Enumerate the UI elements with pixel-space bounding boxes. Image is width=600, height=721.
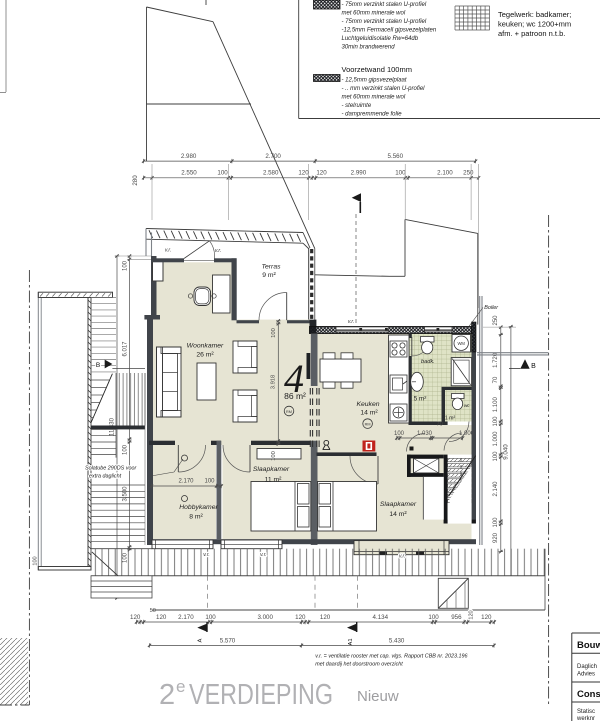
svg-text:badk.: badk. <box>421 359 435 365</box>
svg-text:-12,5mm Fermacell gipsvezelpla: -12,5mm Fermacell gipsvezelplaten <box>342 28 437 34</box>
svg-text:2.990: 2.990 <box>351 170 367 177</box>
svg-text:5.560: 5.560 <box>388 153 404 160</box>
svg-text:250: 250 <box>463 170 474 177</box>
svg-text:Keuken: Keuken <box>356 401 379 408</box>
svg-text:2.100: 2.100 <box>437 170 453 177</box>
svg-text:afm. + patroon n.t.b.: afm. + patroon n.t.b. <box>498 29 565 38</box>
svg-text:2.550: 2.550 <box>181 170 197 177</box>
svg-text:120: 120 <box>130 614 141 621</box>
svg-text:e: e <box>176 677 185 696</box>
svg-text:1.000: 1.000 <box>493 431 499 447</box>
svg-text:100: 100 <box>493 451 499 462</box>
svg-text:30min brandwerend: 30min brandwerend <box>342 45 396 51</box>
svg-text:3.000: 3.000 <box>257 614 273 621</box>
svg-text:RM: RM <box>286 410 292 414</box>
svg-text:120: 120 <box>320 614 331 621</box>
svg-text:Slaapkamer: Slaapkamer <box>380 501 417 508</box>
svg-text:100: 100 <box>217 170 228 177</box>
svg-text:v.r.: v.r. <box>165 248 172 254</box>
svg-text:100: 100 <box>395 170 406 177</box>
svg-text:8 m²: 8 m² <box>189 514 203 521</box>
svg-text:250: 250 <box>493 315 499 326</box>
svg-text:1.030: 1.030 <box>417 431 433 437</box>
svg-text:2.700: 2.700 <box>265 153 281 160</box>
svg-text:2.580: 2.580 <box>263 170 279 177</box>
svg-text:120: 120 <box>298 170 309 177</box>
svg-text:Terras: Terras <box>261 264 281 271</box>
svg-text:Voorzetwand 100mm: Voorzetwand 100mm <box>342 65 412 74</box>
svg-text:2.170: 2.170 <box>178 478 194 484</box>
svg-text:met daardij het doorstroom ove: met daardij het doorstroom overzicht <box>315 662 403 668</box>
svg-text:100: 100 <box>122 444 128 455</box>
svg-text:14 m²: 14 m² <box>389 511 407 518</box>
svg-text:120: 120 <box>156 614 167 621</box>
svg-text:Daglich: Daglich <box>577 664 597 670</box>
svg-text:100: 100 <box>493 517 499 528</box>
svg-text:Tegelwerk: badkamer;: Tegelwerk: badkamer; <box>498 10 571 19</box>
svg-text:2.980: 2.980 <box>181 153 197 160</box>
svg-text:70: 70 <box>493 376 499 383</box>
svg-text:1.100: 1.100 <box>493 397 499 413</box>
svg-text:werknr: werknr <box>576 716 595 721</box>
svg-text:met 60mm minerale wol: met 60mm minerale wol <box>342 11 406 17</box>
svg-text:26 m²: 26 m² <box>196 352 214 359</box>
svg-text:120: 120 <box>469 610 475 619</box>
svg-text:A: A <box>198 638 204 642</box>
svg-text:100: 100 <box>394 431 405 437</box>
svg-text:v.r.: v.r. <box>215 248 222 254</box>
svg-text:v.r.: v.r. <box>203 552 210 558</box>
svg-text:9.040: 9.040 <box>502 444 509 460</box>
svg-text:Statisc: Statisc <box>577 709 595 715</box>
svg-text:B: B <box>531 363 536 370</box>
svg-text:6.017: 6.017 <box>122 341 128 357</box>
svg-text:v.r.: v.r. <box>348 319 355 325</box>
svg-text:9 m²: 9 m² <box>262 272 276 279</box>
svg-text:3.500: 3.500 <box>122 486 128 502</box>
svg-text:Woonkamer: Woonkamer <box>187 343 224 350</box>
svg-text:1.000: 1.000 <box>459 431 475 437</box>
svg-text:Slaapkamer: Slaapkamer <box>253 466 290 473</box>
svg-text:2.170: 2.170 <box>178 614 194 621</box>
svg-text:Bouw: Bouw <box>577 640 600 651</box>
svg-text:5.570: 5.570 <box>220 637 236 644</box>
svg-text:2: 2 <box>159 679 175 711</box>
svg-text:met 60mm minerale wol: met 60mm minerale wol <box>342 95 406 101</box>
svg-text:5.430: 5.430 <box>389 637 405 644</box>
svg-text:keuken; wc 1200+mm: keuken; wc 1200+mm <box>498 20 571 29</box>
svg-text:Hobbykamer: Hobbykamer <box>179 504 218 511</box>
svg-text:5 m²: 5 m² <box>414 396 427 403</box>
svg-text:100: 100 <box>33 556 39 565</box>
svg-text:v.r.: v.r. <box>399 554 406 560</box>
svg-text:B: B <box>96 362 100 369</box>
svg-text:1 m²: 1 m² <box>445 416 456 422</box>
svg-text:v.r.: v.r. <box>260 552 267 558</box>
svg-text:- 75mm verzinkt stalen U-profi: - 75mm verzinkt stalen U-profiel <box>342 2 427 8</box>
svg-text:956: 956 <box>451 614 462 621</box>
svg-text:920: 920 <box>493 532 499 543</box>
svg-text:Luchtgeluidisolatie Rw=64db: Luchtgeluidisolatie Rw=64db <box>342 36 419 42</box>
svg-text:4.134: 4.134 <box>373 614 389 621</box>
svg-text:A1: A1 <box>348 638 354 645</box>
svg-text:50: 50 <box>150 608 156 614</box>
svg-text:Nieuw: Nieuw <box>357 688 399 705</box>
svg-text:extra daglicht: extra daglicht <box>89 474 122 480</box>
svg-text:WM: WM <box>457 341 465 346</box>
svg-text:100: 100 <box>205 614 216 621</box>
svg-text:100: 100 <box>428 614 439 621</box>
svg-text:100: 100 <box>271 328 277 338</box>
svg-text:- stelruimte: - stelruimte <box>342 103 372 109</box>
svg-text:Cons: Cons <box>577 689 600 700</box>
svg-text:100: 100 <box>204 478 215 484</box>
svg-text:VERDIEPING: VERDIEPING <box>189 679 333 711</box>
svg-text:- dampremmende folie: - dampremmende folie <box>342 112 403 118</box>
svg-text:Advies: Advies <box>577 672 595 678</box>
svg-text:120: 120 <box>481 614 492 621</box>
svg-text:280: 280 <box>132 175 139 186</box>
svg-text:2.140: 2.140 <box>493 481 499 497</box>
svg-text:- 12,5mm gipsvezelplaat: - 12,5mm gipsvezelplaat <box>342 78 407 84</box>
svg-text:Solatube 290DS voor: Solatube 290DS voor <box>85 466 136 472</box>
svg-text:100: 100 <box>271 451 277 461</box>
svg-text:120: 120 <box>295 614 306 621</box>
svg-text:120: 120 <box>316 170 327 177</box>
svg-text:Boiler: Boiler <box>484 305 498 311</box>
svg-text:3.918: 3.918 <box>271 375 277 390</box>
svg-text:100: 100 <box>122 260 128 271</box>
svg-text:wc: wc <box>464 403 470 408</box>
svg-text:70: 70 <box>436 422 442 428</box>
svg-text:14 m²: 14 m² <box>360 410 378 417</box>
svg-text:100: 100 <box>493 416 499 427</box>
svg-text:- 75mm verzinkt stalen U-profi: - 75mm verzinkt stalen U-profiel <box>342 19 427 25</box>
svg-text:- .. mm verzinkt stalen U-prof: - .. mm verzinkt stalen U-profiel <box>342 86 426 92</box>
svg-text:RM: RM <box>365 423 371 427</box>
svg-text:v.r. = ventilatie rooster met: v.r. = ventilatie rooster met cap. vlgs.… <box>315 654 467 660</box>
svg-text:86 m²: 86 m² <box>284 391 306 401</box>
svg-text:11 m²: 11 m² <box>265 477 283 484</box>
